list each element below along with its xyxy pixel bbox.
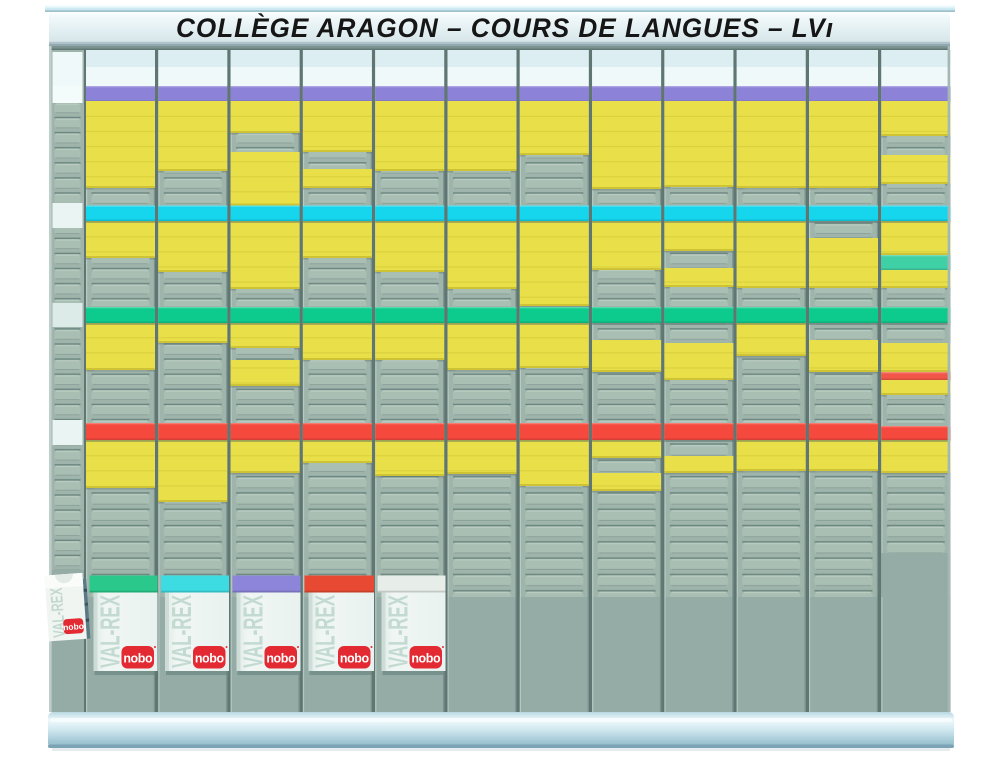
svg-text:nobo: nobo xyxy=(63,621,84,632)
svg-text:COLLÈGE ARAGON – COURS DE LANG: COLLÈGE ARAGON – COURS DE LANGUES – LVı xyxy=(176,13,834,43)
svg-text:nobo: nobo xyxy=(195,652,225,666)
svg-text:VAL-REX: VAL-REX xyxy=(310,595,341,668)
svg-text:nobo: nobo xyxy=(123,652,153,666)
svg-text:VAL-REX: VAL-REX xyxy=(95,595,126,668)
svg-text:nobo: nobo xyxy=(411,652,441,666)
svg-text:VAL-REX: VAL-REX xyxy=(383,595,414,668)
svg-text:nobo: nobo xyxy=(266,652,296,666)
svg-text:VAL-REX: VAL-REX xyxy=(238,595,269,668)
svg-text:nobo: nobo xyxy=(340,652,370,666)
svg-text:VAL-REX: VAL-REX xyxy=(166,595,197,668)
